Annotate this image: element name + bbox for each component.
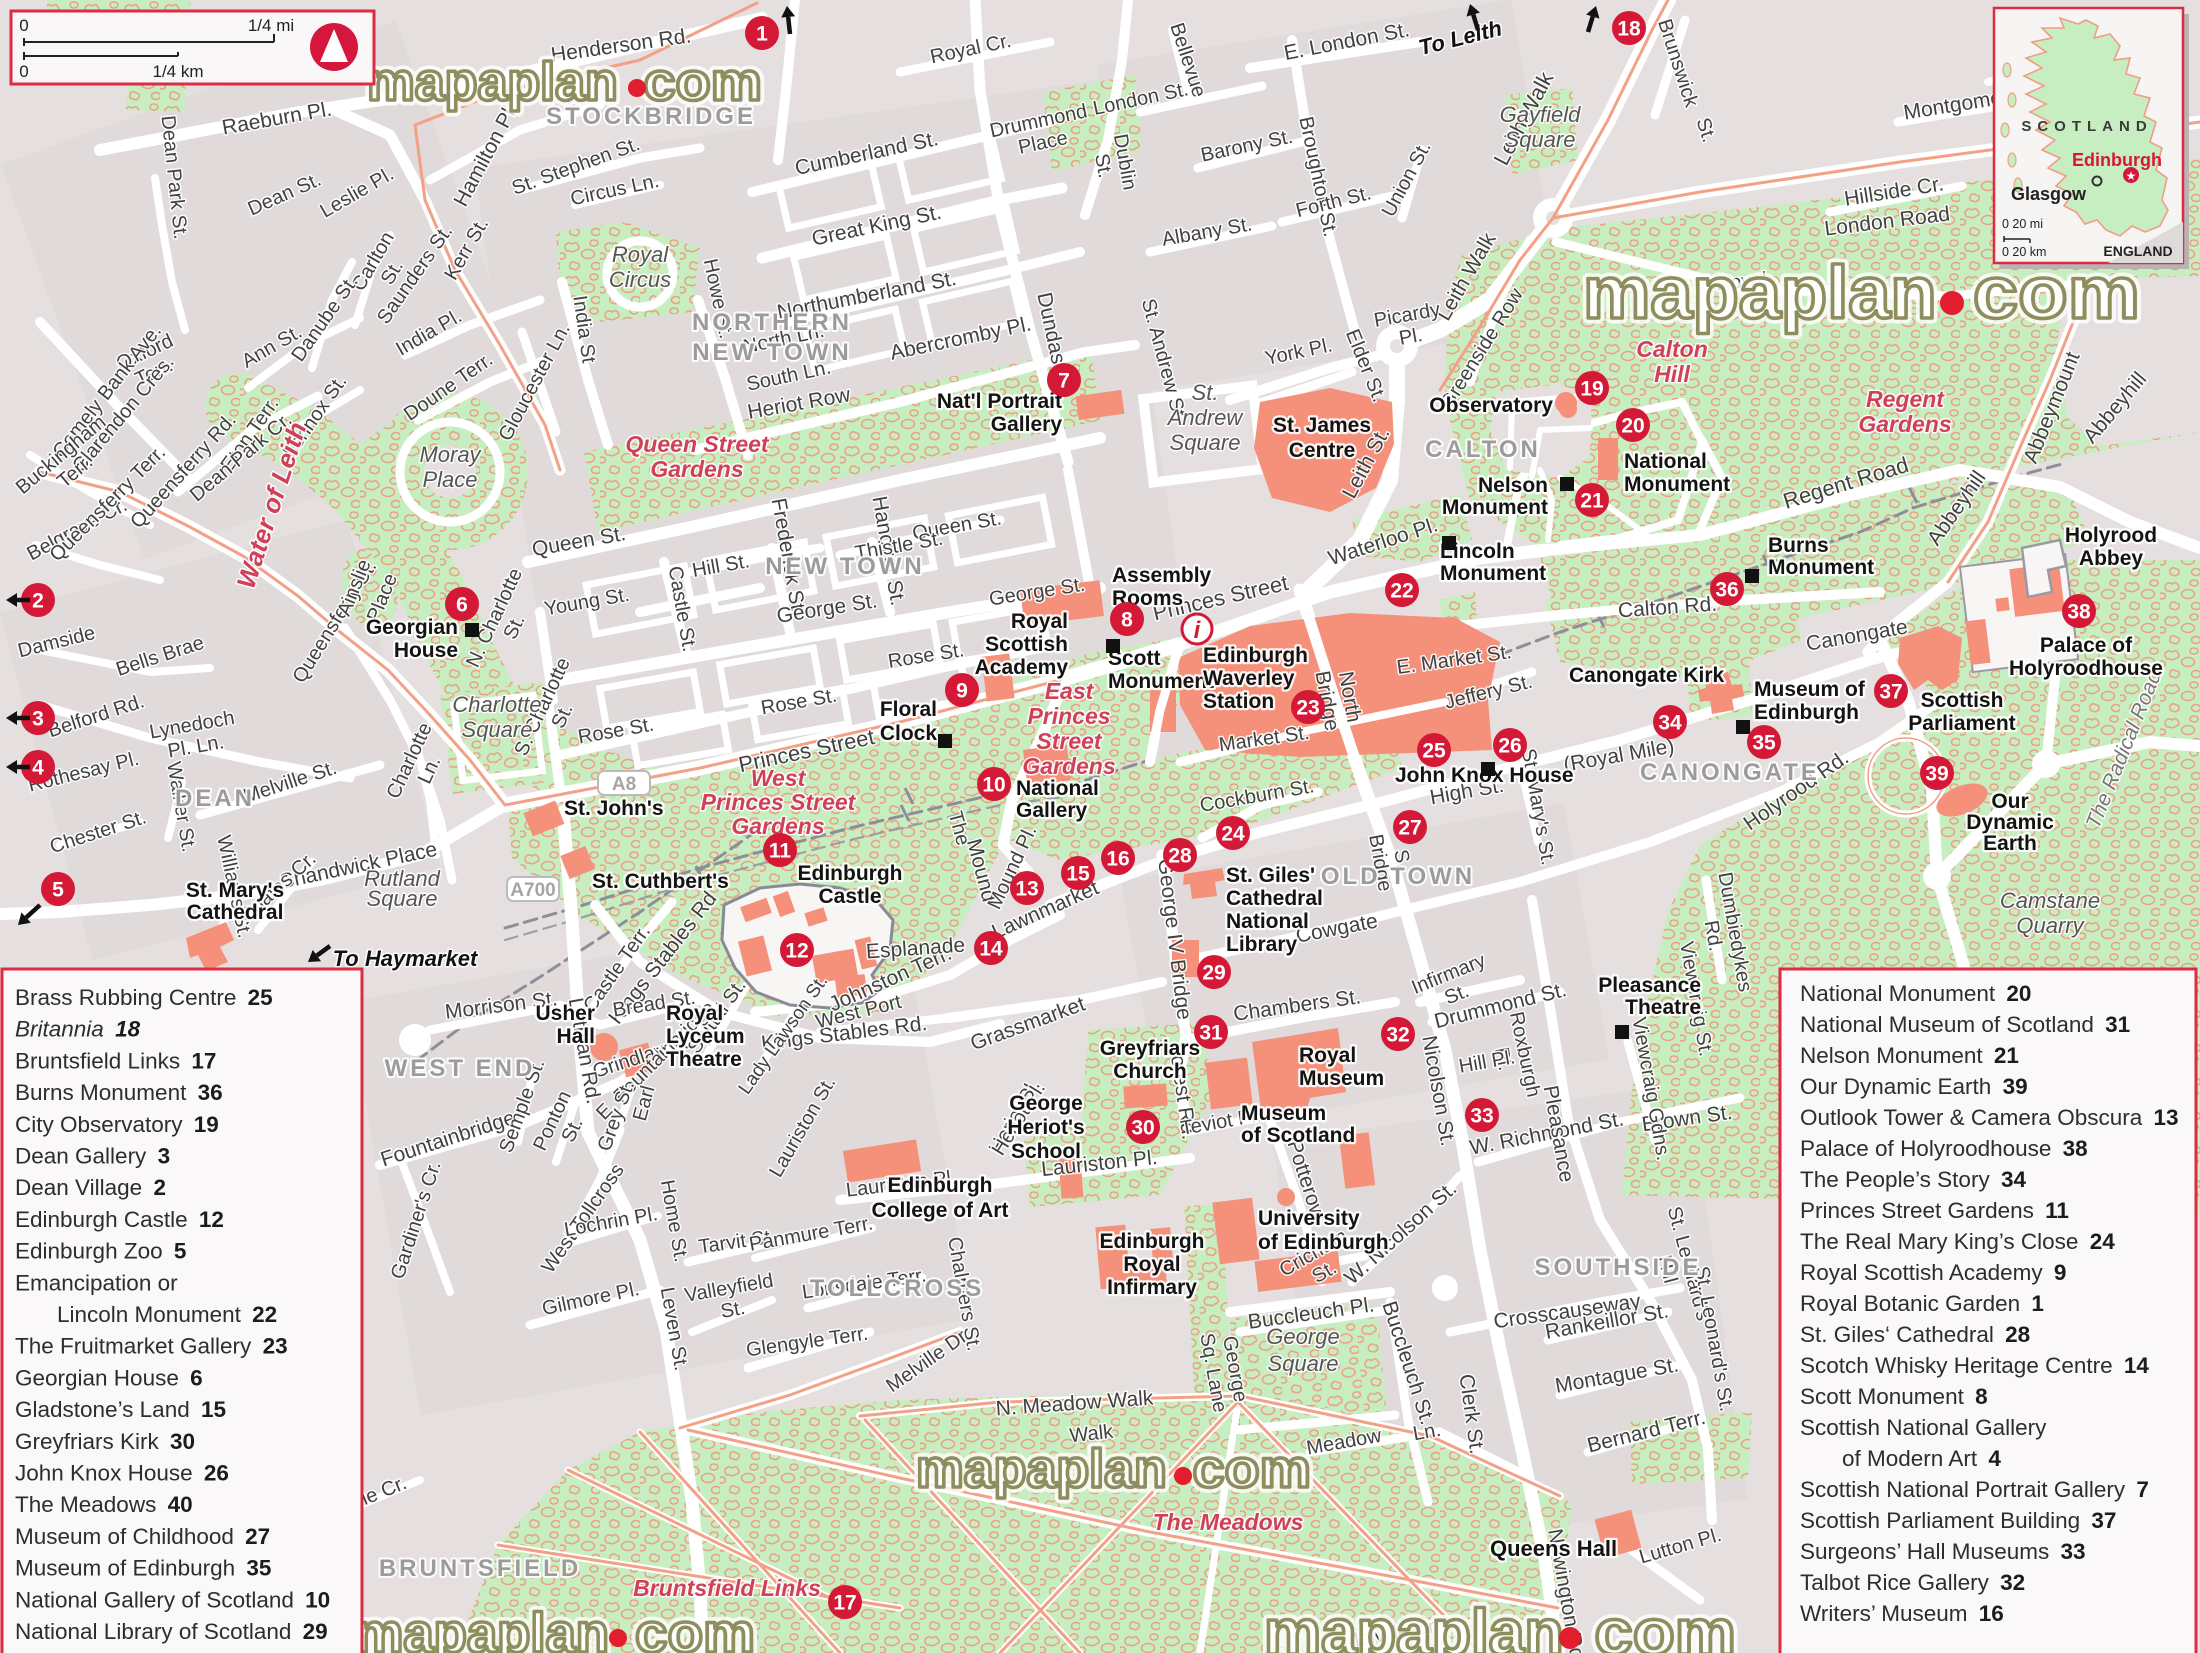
svg-text:National: National <box>1624 450 1707 473</box>
svg-text:Quarry: Quarry <box>2016 913 2085 938</box>
svg-text:Gardens: Gardens <box>650 456 743 482</box>
svg-text:The Meadows 40: The Meadows 40 <box>15 1492 193 1517</box>
svg-text:of Modern Art 4: of Modern Art 4 <box>1842 1446 2001 1471</box>
svg-text:Hall: Hall <box>556 1025 595 1048</box>
svg-text:Georgian House 6: Georgian House 6 <box>15 1365 203 1390</box>
svg-text:Gardens: Gardens <box>1022 753 1115 779</box>
svg-text:Scott Monument 8: Scott Monument 8 <box>1800 1384 1988 1409</box>
svg-text:Heriot's: Heriot's <box>1007 1116 1084 1139</box>
svg-text:21: 21 <box>1580 490 1604 513</box>
svg-text:Bruntsfield Links 17: Bruntsfield Links 17 <box>15 1048 216 1073</box>
svg-text:20: 20 <box>1621 415 1644 438</box>
svg-text:East: East <box>1045 678 1095 704</box>
svg-text:of Scotland: of Scotland <box>1241 1124 1355 1147</box>
svg-text:BRUNTSFIELD: BRUNTSFIELD <box>379 1555 581 1582</box>
svg-text:Cathedral: Cathedral <box>1226 887 1323 910</box>
svg-text:12: 12 <box>785 940 808 963</box>
svg-text:Canongate Kirk: Canongate Kirk <box>1569 664 1725 687</box>
svg-text:Street: Street <box>1036 728 1103 754</box>
svg-text:St. Giles‘ Cathedral 28: St. Giles‘ Cathedral 28 <box>1800 1322 2030 1347</box>
svg-text:To Haymarket: To Haymarket <box>333 946 479 971</box>
svg-text:ENGLAND: ENGLAND <box>2103 243 2172 259</box>
svg-text:Pl.: Pl. <box>1397 324 1424 350</box>
svg-text:34: 34 <box>1658 712 1682 735</box>
svg-text:24: 24 <box>1221 823 1245 846</box>
svg-text:TOLLCROSS: TOLLCROSS <box>810 1275 985 1302</box>
svg-text:Burns Monument 36: Burns Monument 36 <box>15 1080 223 1105</box>
svg-text:NEW TOWN: NEW TOWN <box>692 339 852 366</box>
svg-text:33: 33 <box>1470 1105 1493 1128</box>
svg-text:NORTHERN: NORTHERN <box>692 309 852 336</box>
svg-text:Place: Place <box>422 467 477 492</box>
svg-text:Royal Scottish Academy 9: Royal Scottish Academy 9 <box>1800 1260 2066 1285</box>
svg-text:23: 23 <box>1296 697 1319 720</box>
svg-text:0: 0 <box>19 16 28 35</box>
svg-text:Station: Station <box>1203 690 1274 713</box>
svg-text:House: House <box>394 639 458 662</box>
svg-text:Glasgow: Glasgow <box>2011 184 2087 204</box>
svg-text:Royal: Royal <box>612 242 669 267</box>
svg-text:Gallery: Gallery <box>1016 799 1088 822</box>
svg-text:College of Art: College of Art <box>872 1199 1009 1222</box>
svg-text:St. Mary's: St. Mary's <box>186 879 284 902</box>
svg-text:0 20 km: 0 20 km <box>2002 245 2046 259</box>
svg-text:National Library of Scotland 2: National Library of Scotland 29 <box>15 1619 328 1644</box>
svg-text:The Real Mary King’s Close 24: The Real Mary King’s Close 24 <box>1800 1229 2115 1254</box>
svg-text:Edinburgh: Edinburgh <box>1203 644 1308 667</box>
svg-text:mapaplan: mapaplan <box>1264 1596 1564 1653</box>
svg-text:George: George <box>1266 1324 1339 1349</box>
svg-text:Moray: Moray <box>419 442 482 467</box>
svg-text:Scottish Parliament Building 3: Scottish Parliament Building 37 <box>1800 1508 2116 1533</box>
svg-text:10: 10 <box>982 774 1005 797</box>
svg-text:National Museum of Scotland 31: National Museum of Scotland 31 <box>1800 1012 2130 1037</box>
svg-text:38: 38 <box>2067 601 2091 624</box>
svg-text:Greyfriars Kirk 30: Greyfriars Kirk 30 <box>15 1429 195 1454</box>
svg-text:of Edinburgh: of Edinburgh <box>1258 1231 1389 1254</box>
svg-text:Monument: Monument <box>1442 496 1548 519</box>
svg-text:George: George <box>1009 1092 1083 1115</box>
svg-text:Monument: Monument <box>1108 670 1214 693</box>
svg-text:Scottish: Scottish <box>985 633 1068 656</box>
svg-text:Our Dynamic Earth 39: Our Dynamic Earth 39 <box>1800 1074 2028 1099</box>
svg-text:mapaplan: mapaplan <box>355 1601 609 1653</box>
svg-text:Royal: Royal <box>666 1002 723 1025</box>
svg-text:Pleasance: Pleasance <box>1598 974 1701 997</box>
svg-text:Nelson Monument 21: Nelson Monument 21 <box>1800 1043 2019 1068</box>
svg-text:Scottish: Scottish <box>1921 689 2004 712</box>
svg-text:13: 13 <box>1015 878 1038 901</box>
svg-text:1/4 mi: 1/4 mi <box>248 16 294 35</box>
svg-text:1/4 km: 1/4 km <box>152 62 203 81</box>
svg-text:Calton: Calton <box>1636 336 1708 362</box>
svg-text:SCOTLAND: SCOTLAND <box>2021 118 2152 135</box>
svg-text:WEST END: WEST END <box>385 1055 536 1082</box>
svg-text:Brass Rubbing Centre 25: Brass Rubbing Centre 25 <box>15 985 273 1010</box>
svg-text:West: West <box>751 765 807 791</box>
svg-text:15: 15 <box>1066 863 1090 886</box>
svg-text:The Meadows: The Meadows <box>1153 1509 1304 1535</box>
svg-text:The People’s Story 34: The People’s Story 34 <box>1800 1167 2026 1192</box>
svg-text:mapaplan: mapaplan <box>367 52 618 112</box>
svg-text:14: 14 <box>979 938 1003 961</box>
svg-text:4: 4 <box>32 757 44 780</box>
svg-text:Edinburgh: Edinburgh <box>888 1174 993 1197</box>
svg-text:Royal: Royal <box>1123 1253 1180 1276</box>
svg-text:A8: A8 <box>612 774 636 795</box>
svg-text:Princes Street Gardens 11: Princes Street Gardens 11 <box>1800 1198 2069 1223</box>
svg-text:Usher: Usher <box>535 1002 595 1025</box>
svg-text:Square: Square <box>462 717 533 742</box>
svg-text:7: 7 <box>1058 370 1070 393</box>
svg-text:3: 3 <box>32 708 44 731</box>
svg-text:Nelson: Nelson <box>1478 474 1548 497</box>
svg-text:Library: Library <box>1226 933 1298 956</box>
svg-text:mapaplan: mapaplan <box>916 1439 1167 1499</box>
svg-text:Queen Street: Queen Street <box>625 431 769 457</box>
svg-text:St.: St. <box>1192 380 1219 405</box>
svg-text:Monument: Monument <box>1624 473 1730 496</box>
svg-text:Hill: Hill <box>1654 361 1690 387</box>
svg-text:Floral: Floral <box>880 698 937 721</box>
svg-text:Lincoln Monument 22: Lincoln Monument 22 <box>57 1302 277 1327</box>
svg-text:Holyroodhouse: Holyroodhouse <box>2009 657 2163 680</box>
svg-text:35: 35 <box>1752 732 1776 755</box>
svg-text:National Monument 20: National Monument 20 <box>1800 981 2031 1006</box>
svg-text:Georgian: Georgian <box>366 616 458 639</box>
svg-text:Academy: Academy <box>975 656 1069 679</box>
svg-text:Princes Street: Princes Street <box>701 789 857 815</box>
svg-text:Our: Our <box>1991 790 2028 813</box>
svg-text:Edinburgh: Edinburgh <box>798 862 903 885</box>
svg-text:Abbey: Abbey <box>2079 547 2144 570</box>
svg-text:Museum of Childhood 27: Museum of Childhood 27 <box>15 1524 270 1549</box>
svg-text:Royal: Royal <box>1011 610 1068 633</box>
svg-text:Princes: Princes <box>1027 703 1110 729</box>
svg-text:St. Giles': St. Giles' <box>1226 864 1315 887</box>
svg-text:Gladstone’s Land 15: Gladstone’s Land 15 <box>15 1397 226 1422</box>
svg-text:com: com <box>644 52 763 112</box>
svg-text:22: 22 <box>1390 580 1413 603</box>
svg-text:Clock: Clock <box>880 722 938 745</box>
svg-text:com: com <box>1193 1439 1312 1499</box>
svg-text:Lyceum: Lyceum <box>666 1025 745 1048</box>
svg-text:Royal: Royal <box>1299 1044 1356 1067</box>
svg-text:Talbot Rice Gallery 32: Talbot Rice Gallery 32 <box>1800 1570 2025 1595</box>
svg-text:Waverley: Waverley <box>1203 667 1295 690</box>
svg-text:Museum of: Museum of <box>1754 678 1866 701</box>
svg-text:CANONGATE: CANONGATE <box>1640 759 1820 786</box>
svg-text:Museum: Museum <box>1241 1102 1326 1125</box>
svg-text:39: 39 <box>1925 763 1948 786</box>
svg-text:Scotch Whisky Heritage Centre: Scotch Whisky Heritage Centre 14 <box>1800 1353 2149 1378</box>
svg-text:University: University <box>1258 1207 1360 1230</box>
svg-text:37: 37 <box>1879 681 1902 704</box>
svg-text:Royal Botanic Garden 1: Royal Botanic Garden 1 <box>1800 1291 2044 1316</box>
svg-text:Burns: Burns <box>1768 534 1829 557</box>
svg-text:National Gallery of Scotland 1: National Gallery of Scotland 10 <box>15 1587 330 1612</box>
svg-text:Britannia 18: Britannia 18 <box>15 1017 141 1042</box>
svg-text:A700: A700 <box>510 880 555 901</box>
svg-text:Parliament: Parliament <box>1908 712 2015 735</box>
svg-text:31: 31 <box>1199 1022 1223 1045</box>
svg-text:18: 18 <box>1617 18 1641 41</box>
svg-text:16: 16 <box>1106 848 1129 871</box>
svg-text:Museum: Museum <box>1299 1067 1384 1090</box>
svg-text:mapaplan: mapaplan <box>1583 251 1937 334</box>
svg-text:Centre: Centre <box>1289 439 1356 462</box>
svg-text:5: 5 <box>52 879 64 902</box>
svg-text:Surgeons’ Hall Museums 33: Surgeons’ Hall Museums 33 <box>1800 1539 2086 1564</box>
svg-text:28: 28 <box>1168 845 1192 868</box>
svg-text:SOUTHSIDE: SOUTHSIDE <box>1534 1254 1701 1281</box>
svg-text:St. James: St. James <box>1273 414 1371 437</box>
svg-text:St. Cuthbert's: St. Cuthbert's <box>592 870 729 893</box>
svg-text:Regent: Regent <box>1866 386 1945 412</box>
svg-text:Bruntsfield Links: Bruntsfield Links <box>633 1575 821 1601</box>
svg-text:8: 8 <box>1121 609 1133 632</box>
svg-text:Castle: Castle <box>818 885 881 908</box>
svg-text:Emancipation or: Emancipation or <box>15 1270 178 1295</box>
svg-text:Square: Square <box>1505 127 1576 152</box>
svg-text:32: 32 <box>1386 1024 1409 1047</box>
svg-text:Andrew: Andrew <box>1166 405 1245 430</box>
svg-text:St.: St. <box>1090 152 1116 180</box>
svg-text:26: 26 <box>1498 735 1521 758</box>
svg-text:Holyrood: Holyrood <box>2065 524 2157 547</box>
svg-text:Dynamic: Dynamic <box>1966 811 2054 834</box>
svg-text:OLD TOWN: OLD TOWN <box>1321 863 1475 890</box>
svg-text:6: 6 <box>456 594 468 617</box>
svg-text:Charlotte: Charlotte <box>452 692 541 717</box>
svg-text:National: National <box>1016 777 1099 800</box>
svg-text:Church: Church <box>1113 1060 1187 1083</box>
svg-text:Assembly: Assembly <box>1112 564 1212 587</box>
svg-text:0: 0 <box>19 62 28 81</box>
svg-text:Palace of: Palace of <box>2040 634 2133 657</box>
svg-text:29: 29 <box>1202 962 1225 985</box>
svg-text:Queens Hall: Queens Hall <box>1490 1536 1617 1561</box>
svg-text:Greyfriars: Greyfriars <box>1100 1037 1200 1060</box>
svg-text:The Fruitmarket Gallery 23: The Fruitmarket Gallery 23 <box>15 1334 288 1359</box>
svg-text:CALTON: CALTON <box>1425 436 1541 463</box>
svg-text:City Observatory 19: City Observatory 19 <box>15 1112 219 1137</box>
svg-text:Camstane: Camstane <box>2000 888 2100 913</box>
svg-text:Scottish National Gallery: Scottish National Gallery <box>1800 1415 2047 1440</box>
svg-text:St. John's: St. John's <box>564 797 664 820</box>
svg-text:National: National <box>1226 910 1309 933</box>
svg-text:Earth: Earth <box>1983 832 2037 855</box>
svg-text:Outlook Tower & Camera Obscura: Outlook Tower & Camera Obscura 13 <box>1800 1105 2179 1130</box>
svg-text:Edinburgh Castle 12: Edinburgh Castle 12 <box>15 1207 224 1232</box>
svg-text:Palace of Holyroodhouse 38: Palace of Holyroodhouse 38 <box>1800 1136 2088 1161</box>
svg-text:17: 17 <box>833 1592 856 1615</box>
svg-text:25: 25 <box>1422 740 1446 763</box>
svg-text:36: 36 <box>1715 579 1738 602</box>
svg-text:NEW TOWN: NEW TOWN <box>765 553 925 580</box>
svg-text:Gardens: Gardens <box>1858 411 1951 437</box>
svg-text:Theatre: Theatre <box>666 1048 742 1071</box>
svg-text:Square: Square <box>1170 430 1241 455</box>
svg-text:Dean Village 2: Dean Village 2 <box>15 1175 166 1200</box>
svg-text:Theatre: Theatre <box>1625 996 1701 1019</box>
svg-text:★: ★ <box>2126 169 2137 183</box>
svg-text:0 20 mi: 0 20 mi <box>2002 217 2043 231</box>
svg-text:DEAN: DEAN <box>175 785 255 812</box>
svg-text:Scottish National Portrait Gal: Scottish National Portrait Gallery 7 <box>1800 1477 2149 1502</box>
svg-text:Gallery: Gallery <box>991 413 1063 436</box>
svg-text:Cathedral: Cathedral <box>187 901 284 924</box>
svg-text:com: com <box>1594 1596 1736 1653</box>
svg-text:Observatory: Observatory <box>1429 394 1553 417</box>
svg-text:Square: Square <box>367 886 438 911</box>
svg-text:John Knox House 26: John Knox House 26 <box>15 1461 229 1486</box>
svg-text:Edinburgh: Edinburgh <box>1754 701 1859 724</box>
svg-text:Nat'l Portrait: Nat'l Portrait <box>937 390 1062 413</box>
svg-text:com: com <box>635 1601 755 1653</box>
svg-text:Edinburgh: Edinburgh <box>1100 1230 1205 1253</box>
svg-text:Circus: Circus <box>609 267 671 292</box>
svg-text:9: 9 <box>956 680 968 703</box>
svg-text:30: 30 <box>1131 1117 1154 1140</box>
svg-text:1: 1 <box>756 23 768 46</box>
svg-text:Edinburgh Zoo 5: Edinburgh Zoo 5 <box>15 1239 186 1264</box>
svg-text:2: 2 <box>32 590 44 613</box>
svg-text:19: 19 <box>1580 378 1603 401</box>
svg-text:Dean Gallery 3: Dean Gallery 3 <box>15 1144 170 1169</box>
svg-text:Monument: Monument <box>1768 556 1874 579</box>
svg-text:Infirmary: Infirmary <box>1107 1276 1197 1299</box>
svg-text:Square: Square <box>1268 1351 1339 1376</box>
svg-text:27: 27 <box>1398 817 1421 840</box>
svg-text:Gayfield: Gayfield <box>1500 102 1581 127</box>
svg-text:Monument: Monument <box>1440 562 1546 585</box>
svg-text:11: 11 <box>769 840 792 863</box>
svg-text:St.: St. <box>719 1297 747 1323</box>
svg-text:Writers’ Museum 16: Writers’ Museum 16 <box>1800 1601 2004 1626</box>
svg-text:School: School <box>1011 1140 1081 1163</box>
svg-text:Museum of Edinburgh 35: Museum of Edinburgh 35 <box>15 1556 271 1581</box>
svg-text:Edinburgh: Edinburgh <box>2072 150 2162 170</box>
